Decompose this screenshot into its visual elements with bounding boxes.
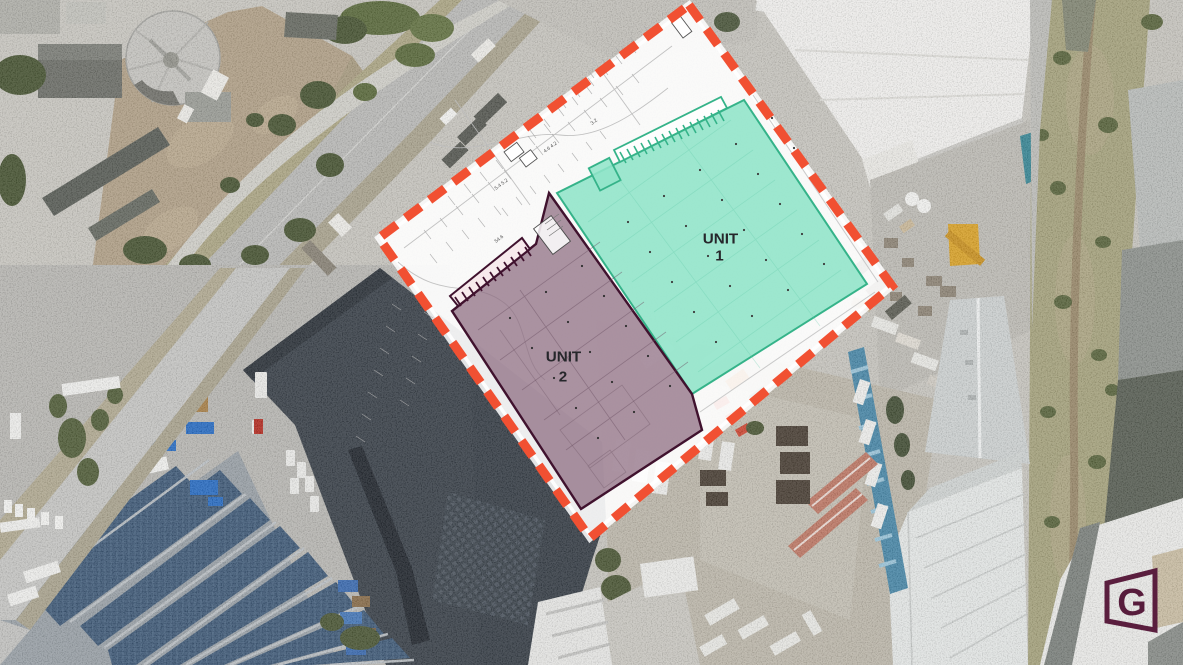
svg-text:UNIT: UNIT	[703, 231, 739, 248]
svg-text:2: 2	[559, 368, 567, 385]
svg-text:G: G	[1117, 582, 1147, 624]
svg-text:UNIT: UNIT	[546, 348, 582, 365]
svg-text:1: 1	[715, 248, 724, 265]
